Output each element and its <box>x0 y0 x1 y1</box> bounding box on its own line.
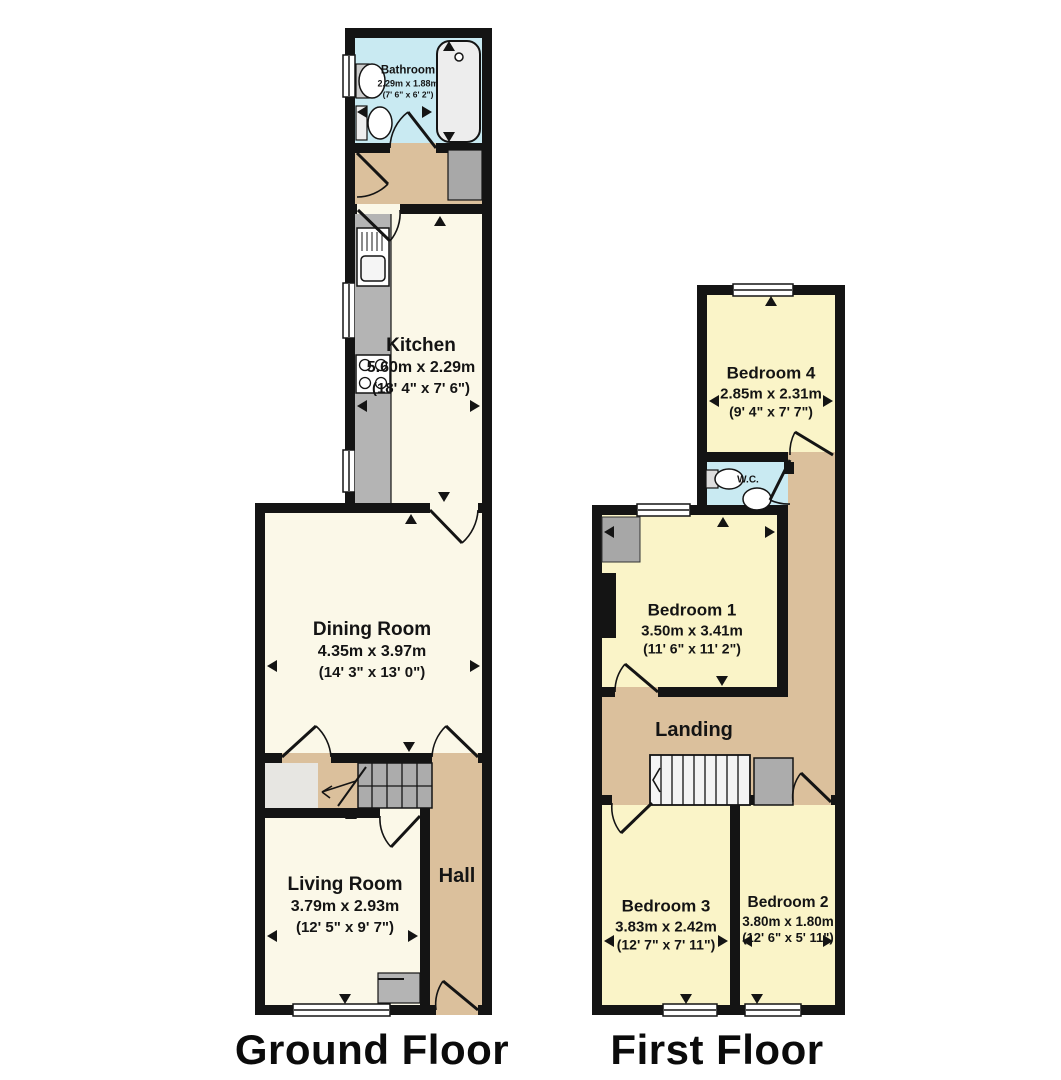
kitchen-label: Kitchen 5.60m x 2.29m (18' 4" x 7' 6") <box>367 334 476 398</box>
room-name: Bedroom 1 <box>641 600 743 622</box>
room-name: Kitchen <box>367 334 476 358</box>
dining-left-door-gap <box>282 753 331 763</box>
room-metric: 3.80m x 1.80m <box>742 913 834 930</box>
room-name: Bedroom 3 <box>615 896 717 918</box>
room-metric: 2.29m x 1.88m <box>377 78 438 90</box>
bedroom2-label: Bedroom 2 3.80m x 1.80m (12' 6" x 5' 11"… <box>742 893 834 947</box>
room-name: W.C. <box>737 475 759 488</box>
bedroom3-label: Bedroom 3 3.83m x 2.42m (12' 7" x 7' 11"… <box>615 896 717 955</box>
room-name: Living Room <box>287 873 402 897</box>
bedroom4-label: Bedroom 4 2.85m x 2.31m (9' 4" x 7' 7") <box>720 363 822 422</box>
first-stairs <box>650 755 793 805</box>
room-metric: 3.50m x 3.41m <box>641 621 743 640</box>
wall-bed1-corridor <box>777 515 788 697</box>
first-corridor-floor <box>788 452 835 697</box>
wc-label: W.C. <box>737 475 759 488</box>
dining-room-label: Dining Room 4.35m x 3.97m (14' 3" x 13' … <box>313 618 431 682</box>
room-name: Hall <box>439 864 476 890</box>
bath-tub <box>437 41 480 142</box>
room-imperial: (14' 3" x 13' 0") <box>313 663 431 682</box>
floorplan-canvas <box>0 0 1061 1080</box>
landing-label: Landing <box>655 718 733 744</box>
room-name: Dining Room <box>313 618 431 642</box>
room-name: Landing <box>655 718 733 744</box>
living-gray-unit <box>378 973 420 1003</box>
stair-head-block <box>754 758 793 805</box>
room-name: Bedroom 4 <box>720 363 822 385</box>
bedroom1-wall-nib <box>602 573 616 638</box>
room-metric: 5.60m x 2.29m <box>367 358 476 378</box>
floorplan-page: Bathroom 2.29m x 1.88m (7' 6" x 6' 2") K… <box>0 0 1061 1080</box>
room-imperial: (12' 7" x 7' 11") <box>615 937 717 955</box>
bedroom1-label: Bedroom 1 3.50m x 3.41m (11' 6" x 11' 2"… <box>641 600 743 659</box>
room-imperial: (12' 6" x 5' 11") <box>742 930 834 947</box>
wc-toilet <box>743 488 771 510</box>
room-imperial: (9' 4" x 7' 7") <box>720 404 822 422</box>
room-name: Bedroom 2 <box>742 893 834 913</box>
room-imperial: (11' 6" x 11' 2") <box>641 641 743 659</box>
living-room-label: Living Room 3.79m x 2.93m (12' 5" x 9' 7… <box>287 873 402 937</box>
room-name: Bathroom <box>377 63 438 78</box>
room-imperial: (18' 4" x 7' 6") <box>367 379 476 398</box>
lobby-cupboard <box>448 150 482 200</box>
kitchen-door-gap <box>357 204 400 214</box>
wall-bed4-wc <box>697 452 788 462</box>
room-metric: 3.83m x 2.42m <box>615 917 717 936</box>
hall-label: Hall <box>439 864 476 890</box>
bedroom1-door-gap <box>615 687 658 697</box>
wall-living-hall <box>420 808 430 1015</box>
room-metric: 4.35m x 3.97m <box>313 642 431 662</box>
bathroom-door-gap <box>390 143 436 153</box>
room-imperial: (7' 6" x 6' 2") <box>377 90 438 101</box>
kitchen-dining-gap <box>430 500 478 513</box>
understairs-alcove <box>265 763 318 808</box>
wall-bed3-bed2 <box>730 805 740 1015</box>
dining-hall-door-gap <box>432 753 478 763</box>
bathroom-label: Bathroom 2.29m x 1.88m (7' 6" x 6' 2") <box>377 63 438 100</box>
room-metric: 2.85m x 2.31m <box>720 384 822 403</box>
first-floor-title: First Floor <box>610 1026 823 1074</box>
ground-floor-title: Ground Floor <box>235 1026 509 1074</box>
bedroom3-door-gap <box>612 795 652 805</box>
living-door-gap <box>380 808 420 818</box>
room-metric: 3.79m x 2.93m <box>287 897 402 917</box>
room-imperial: (12' 5" x 9' 7") <box>287 918 402 937</box>
bedroom1-chimney <box>602 517 640 562</box>
